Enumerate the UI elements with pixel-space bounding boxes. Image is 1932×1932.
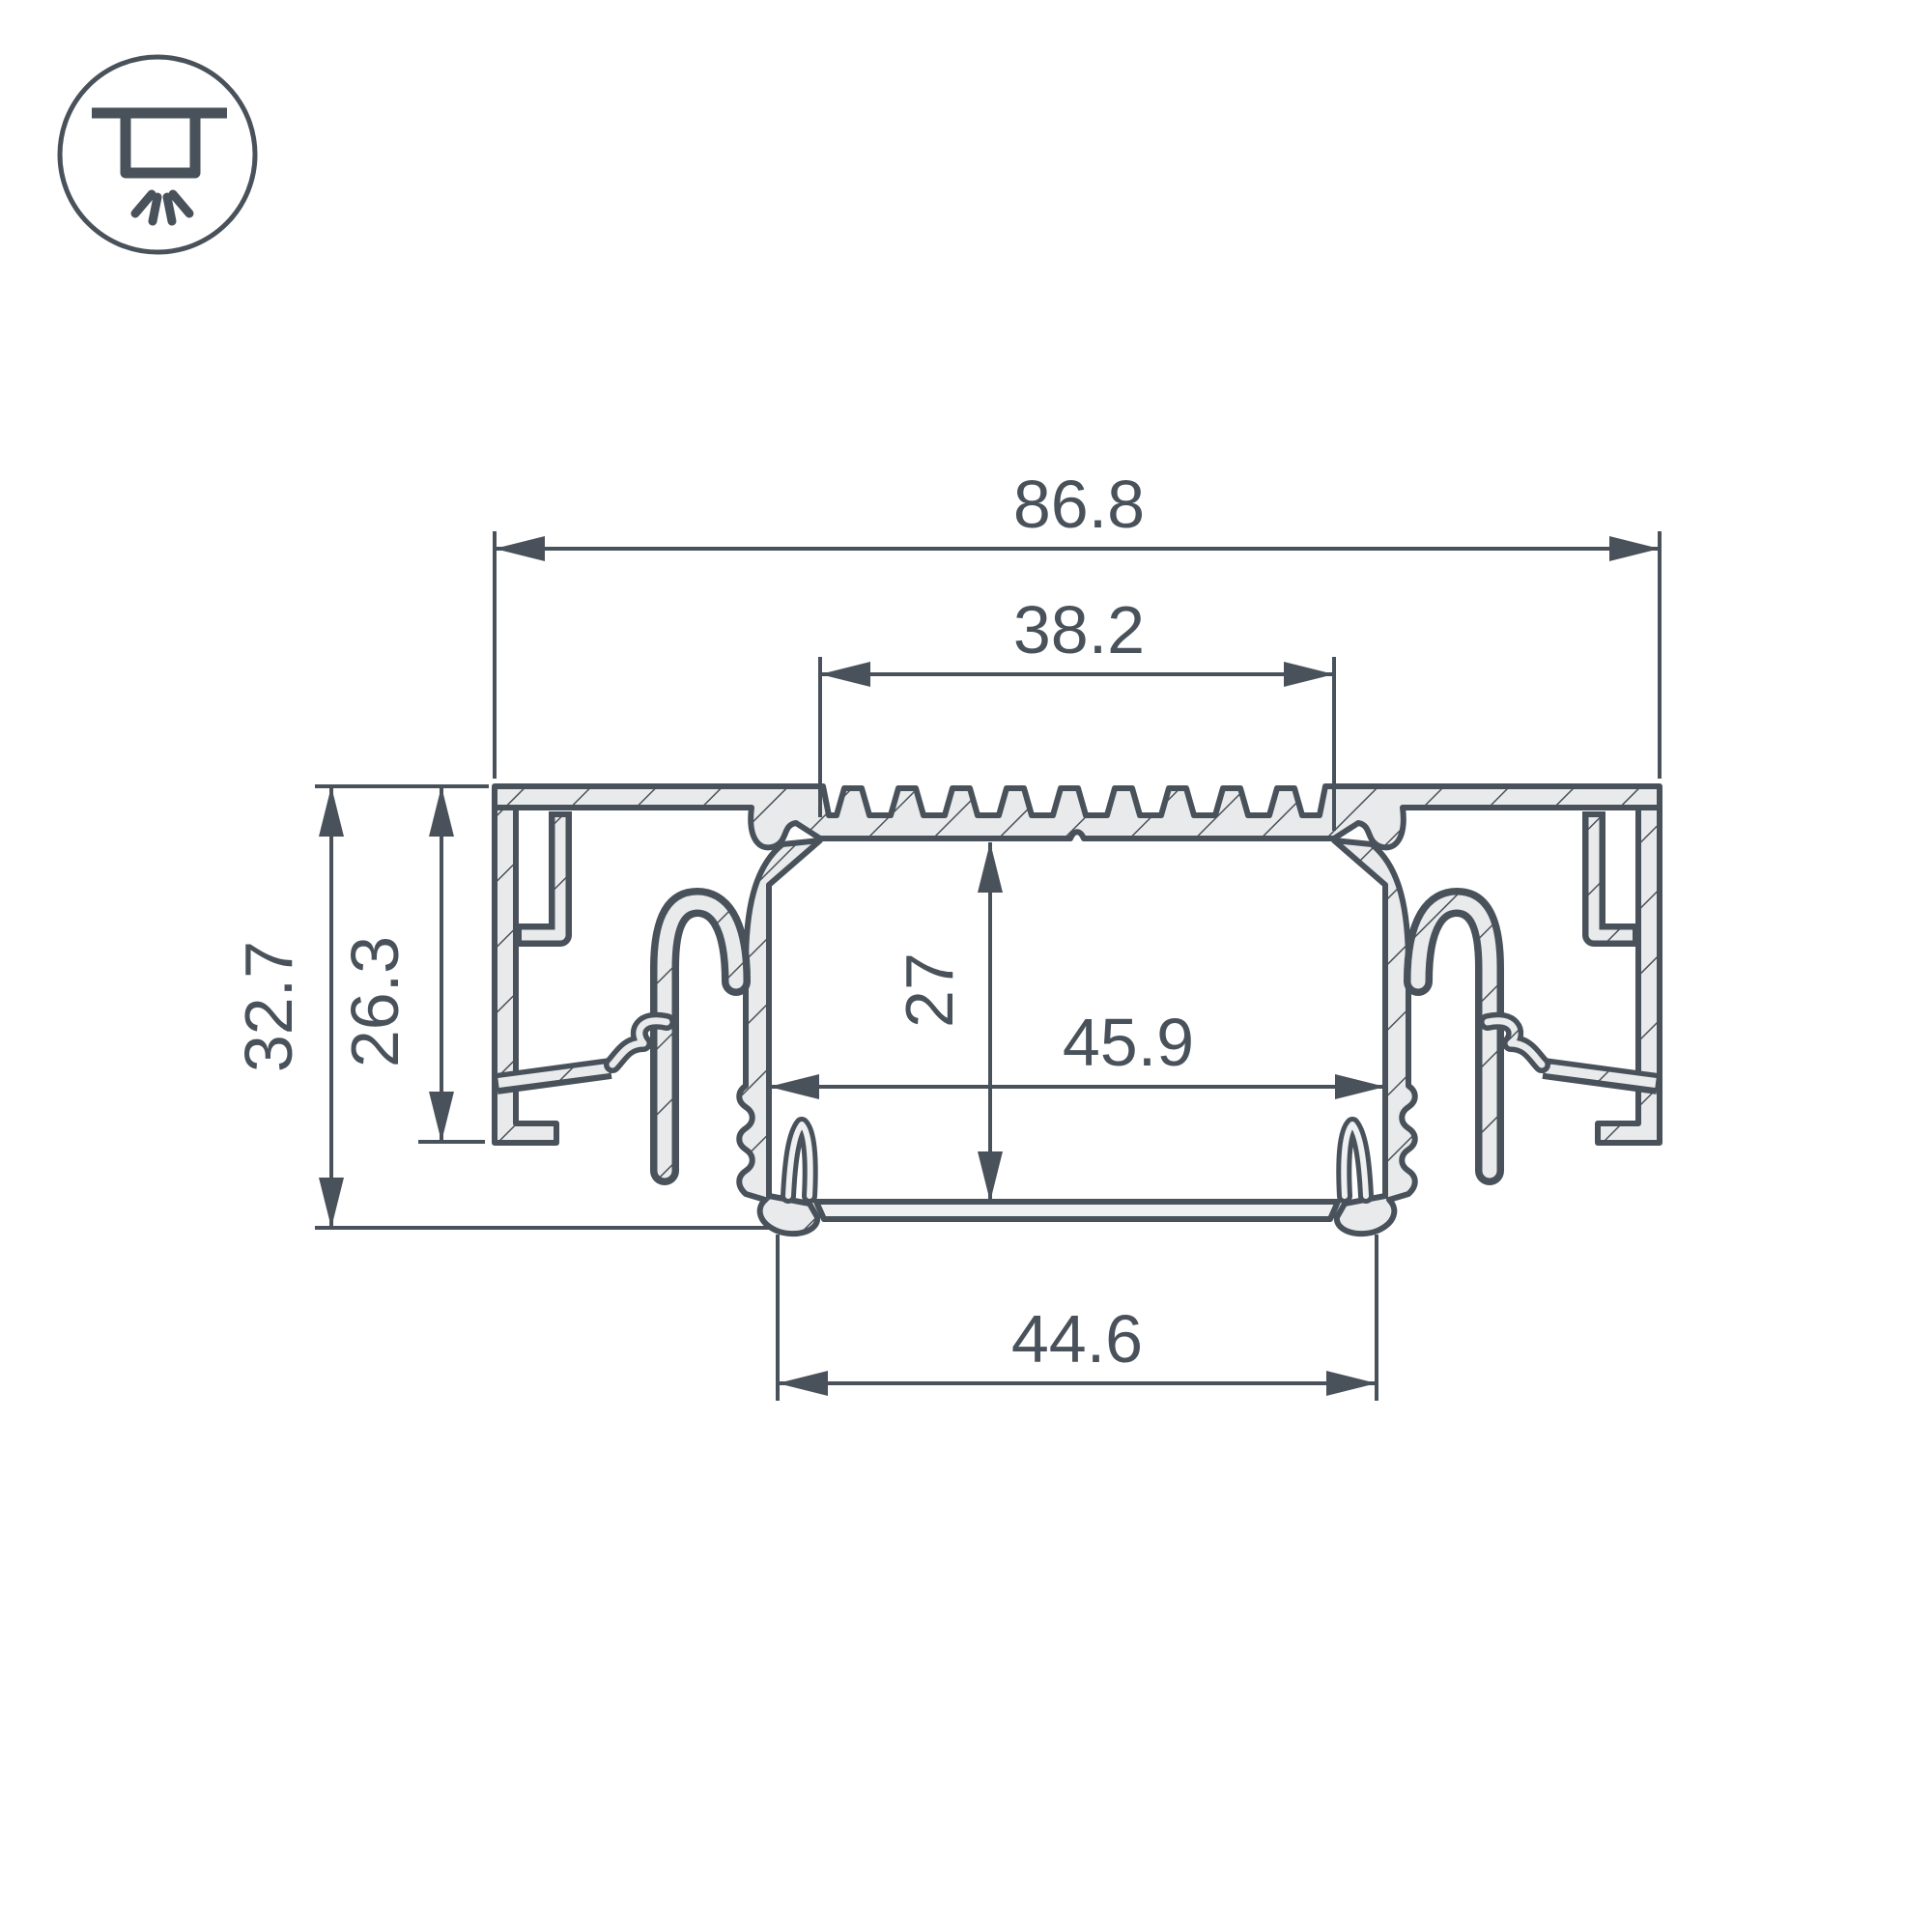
profile-right-half [1334,808,1660,1234]
dim-bottom-width: 44.6 [778,1235,1377,1401]
dim-flange-height: 26.3 [337,786,485,1142]
arrow-right [1609,536,1660,561]
arrow-down [429,1092,454,1142]
diffuser-plate [816,1202,1338,1219]
profile-left-half [495,808,820,1234]
t-rib [518,811,560,935]
arrow-down [319,1178,344,1228]
arrow-right [1326,1371,1377,1396]
arrow-left [820,662,870,687]
dim-channel-depth: 27 [892,842,1003,1202]
icon-circle [60,57,255,252]
arrow-up [319,786,344,837]
dim-label-overall-width: 86.8 [1013,467,1145,542]
dim-label-flange-height: 26.3 [337,936,412,1067]
dim-channel-inner-width: 45.9 [769,1005,1385,1099]
top-plate-with-fins [495,786,1660,847]
mounting-type-icon [60,57,255,252]
arrow-up [429,786,454,837]
arrow-left [769,1074,819,1099]
arrow-right [1335,1074,1385,1099]
arrow-left [778,1371,828,1396]
dim-label-channel-inner-width: 45.9 [1063,1005,1194,1080]
dimensions: 86.8 38.2 32.7 26.3 [231,467,1660,1401]
t-rib [1594,811,1636,935]
drawing-canvas: 86.8 38.2 32.7 26.3 [0,0,1932,1932]
dim-label-channel-depth: 27 [892,952,967,1028]
arrow-left [495,536,545,561]
dim-label-bottom-width: 44.6 [1011,1301,1143,1377]
icon-fixture-box [126,113,195,173]
dim-label-top-opening: 38.2 [1013,592,1145,668]
profile-drawing: 86.8 38.2 32.7 26.3 [0,0,1932,1932]
arrow-up [978,842,1003,893]
arrow-down [978,1151,1003,1202]
dim-label-overall-height: 32.7 [231,941,306,1072]
icon-light-rays [135,194,189,221]
arrow-right [1284,662,1334,687]
